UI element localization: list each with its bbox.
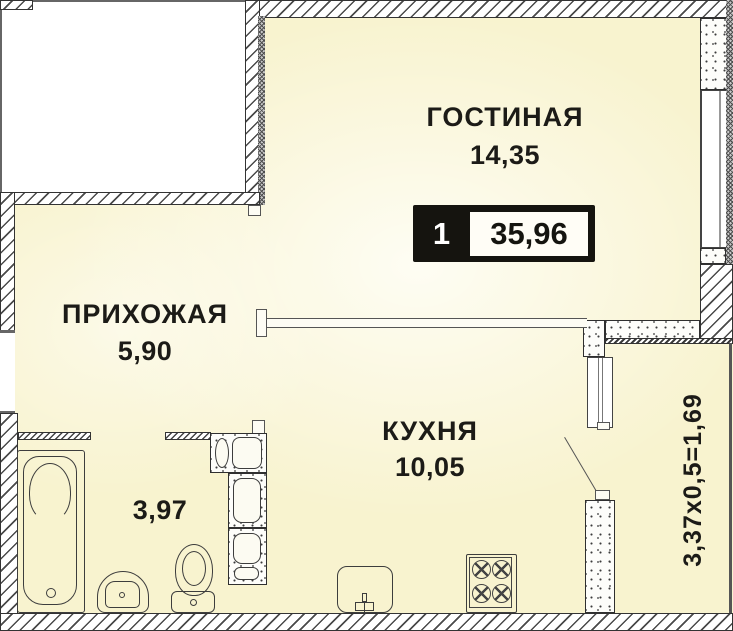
badge-room-count: 1	[413, 216, 470, 252]
kitchen-area: 10,05	[330, 453, 530, 483]
toilet-bowl-icon	[175, 544, 213, 596]
kitchen-sink-icon	[337, 566, 393, 613]
entrance-door-opening	[0, 332, 15, 413]
bathroom-area: 3,97	[110, 496, 210, 526]
wall-left-upper	[0, 192, 15, 332]
bathtub-icon	[17, 450, 85, 613]
vent-shaft-mid	[228, 473, 267, 528]
kitchen-tap-base	[355, 602, 374, 611]
floorplan-canvas: ГОСТИНАЯ 14,35 1 35,96 ПРИХОЖАЯ 5,90 КУХ…	[0, 0, 733, 631]
column-top-right	[700, 18, 727, 90]
vent-duct-oval-icon	[215, 438, 229, 468]
pillar-balcony	[585, 500, 615, 613]
stove-top	[469, 557, 512, 608]
outside-area	[0, 0, 245, 192]
living-room-area: 14,35	[380, 141, 630, 171]
insulation-living-left	[258, 16, 265, 205]
window-mullion	[598, 358, 603, 426]
vent-shaft-top	[210, 433, 267, 473]
vent-duct-small-icon	[234, 567, 259, 580]
wall-left-lower	[0, 413, 18, 631]
toilet-tank-icon	[171, 591, 215, 613]
vent-duct-icon	[233, 478, 261, 523]
burner-icon	[472, 584, 491, 603]
wall-bathroom-top-left	[18, 432, 91, 440]
wall-bottom	[0, 613, 733, 631]
window-kitchen	[587, 357, 613, 428]
outside-boundary-top	[0, 0, 245, 2]
partition-living-kitchen	[263, 318, 587, 328]
hallway-label: ПРИХОЖАЯ	[30, 300, 260, 330]
balcony-door-hinge	[595, 490, 610, 500]
loggia-dimensions: 3,37х0,5=1,69	[680, 360, 714, 600]
loggia-glazing-top	[605, 338, 733, 344]
living-doorway-jamb	[248, 205, 261, 216]
loggia-edge-right	[729, 343, 732, 613]
outside-boundary-left	[0, 0, 2, 192]
kitchen-label: КУХНЯ	[330, 417, 530, 447]
wall-stub-top-left	[0, 0, 33, 10]
window-end-cap	[597, 422, 610, 430]
kitchen-tap-divider	[364, 603, 365, 612]
bathtub-drain	[46, 588, 56, 598]
bathtub-backrest-curve	[29, 463, 71, 521]
vent-duct-icon	[233, 533, 261, 564]
column-right-small	[700, 248, 726, 264]
wall-bathroom-top-right	[165, 432, 211, 440]
toilet-tank-button	[190, 599, 197, 606]
vent-shaft-bottom	[228, 528, 267, 585]
burner-icon	[492, 560, 511, 579]
badge-total-area: 35,96	[470, 212, 588, 256]
lower-rooms-area	[0, 192, 733, 613]
apartment-badge: 1 35,96	[413, 205, 595, 262]
burner-icon	[472, 560, 491, 579]
insulation-right	[726, 0, 733, 264]
entrance-jamb-top	[0, 330, 15, 333]
living-room-label: ГОСТИНАЯ	[380, 103, 630, 133]
vent-duct-square-icon	[232, 437, 262, 469]
wall-hallway-top	[0, 192, 260, 205]
wall-corner-concrete-h	[605, 320, 700, 340]
stove-icon	[466, 554, 517, 613]
wall-right-mid	[700, 264, 733, 340]
burner-icon	[492, 584, 511, 603]
window-living-right	[700, 90, 726, 248]
hallway-area: 5,90	[30, 337, 260, 367]
sink-drain	[119, 592, 125, 598]
wall-top	[245, 0, 733, 18]
kitchen-tap-stem	[362, 593, 367, 602]
toilet-bowl-inner	[182, 551, 206, 586]
window-glazing-line	[719, 91, 721, 247]
